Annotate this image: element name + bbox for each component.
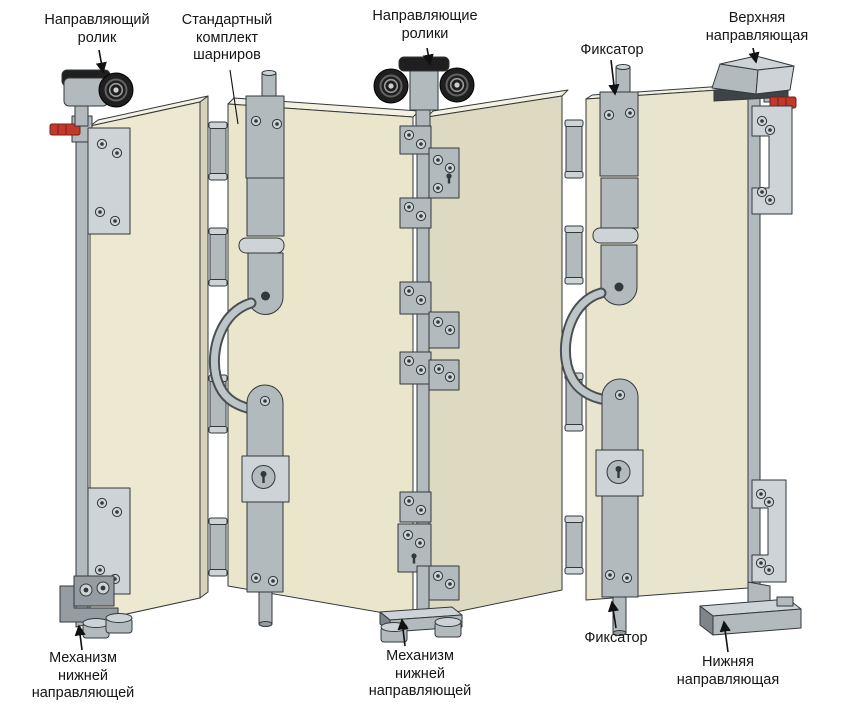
lock-cylinder-panel-2 bbox=[242, 456, 289, 502]
label-guide-rollers: Направляющие ролики bbox=[358, 8, 492, 43]
label-guide-roller: Направляющий ролик bbox=[30, 12, 164, 47]
top-bracket-left bbox=[88, 128, 130, 234]
label-standard-hinge-kit: Стандартный комплект шарниров bbox=[175, 12, 279, 65]
door-panel-1 bbox=[50, 70, 208, 638]
arrow-guide-roller bbox=[99, 50, 103, 72]
label-fixator-top: Фиксатор bbox=[570, 42, 654, 60]
arrow-lower-mechanism-left bbox=[79, 626, 82, 650]
label-fixator-bottom: Фиксатор bbox=[574, 630, 658, 648]
fixator-pin-top-panel-4 bbox=[616, 65, 630, 96]
top-guide-rail bbox=[712, 56, 794, 101]
label-upper-guide: Верхняя направляющая bbox=[697, 10, 817, 45]
lock-cylinder-panel-4 bbox=[596, 450, 643, 496]
fixator-pin-bottom-panel-2 bbox=[259, 592, 272, 627]
arrow-fixator-top bbox=[611, 60, 615, 94]
label-lower-guide: Нижняя направляющая bbox=[662, 654, 794, 689]
edge-rail-left bbox=[76, 118, 88, 627]
label-lower-guide-mechanism-left: Механизм нижней направляющей bbox=[18, 650, 148, 703]
folding-door-diagram: Направляющий ролик Стандартный комплект … bbox=[0, 0, 850, 710]
label-lower-guide-mechanism-center: Механизм нижней направляющей bbox=[355, 648, 485, 701]
edge-rail-right bbox=[748, 94, 760, 598]
diagram-canvas bbox=[0, 0, 850, 710]
